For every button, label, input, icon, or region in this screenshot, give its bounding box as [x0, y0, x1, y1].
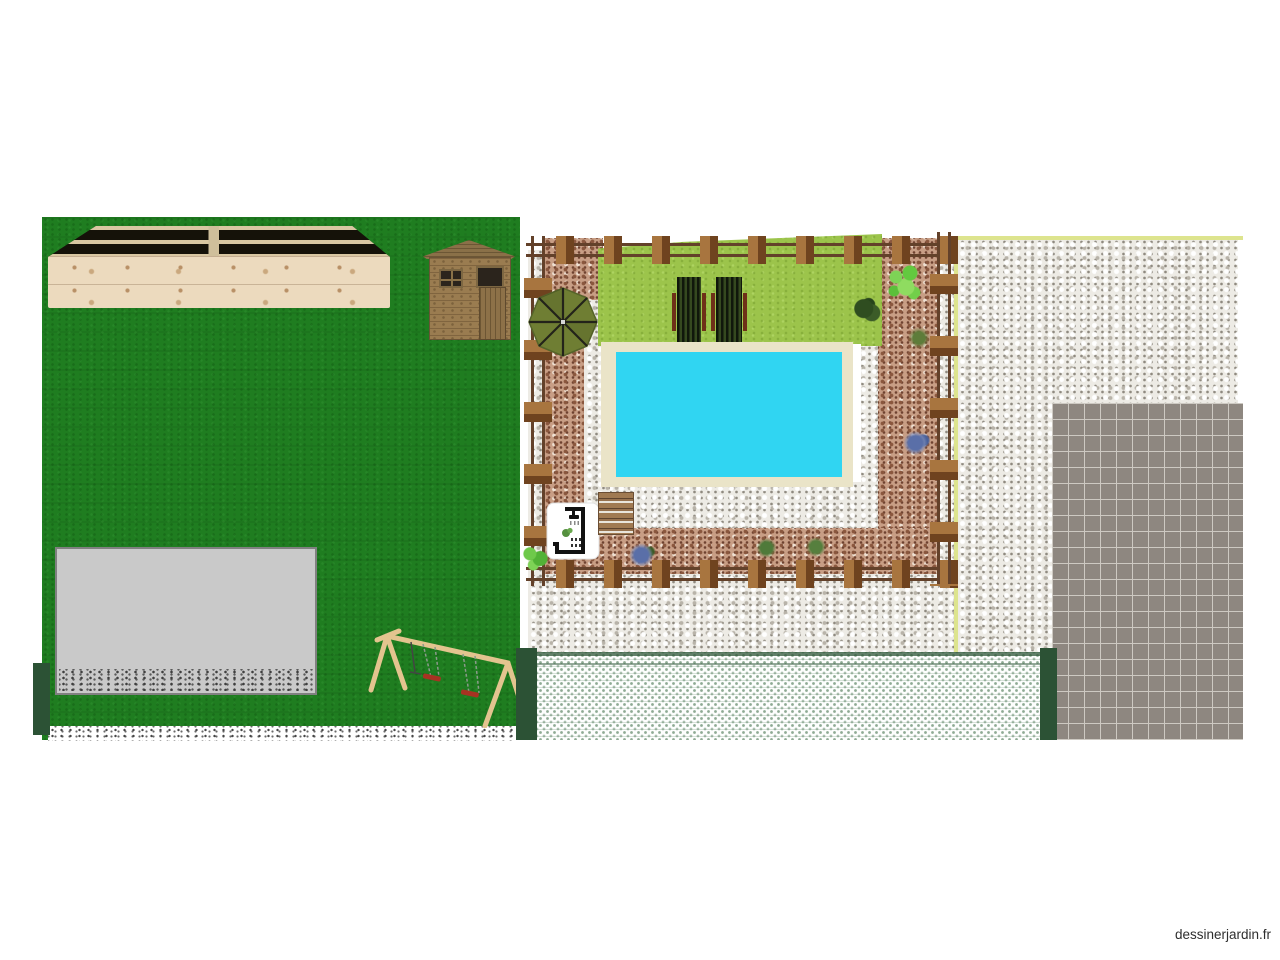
plant-green-bush[interactable] — [518, 541, 552, 573]
pool-surround — [601, 342, 853, 487]
plant-grass-tuft-3[interactable] — [804, 536, 828, 558]
plant-grass-tuft-2[interactable] — [753, 538, 783, 558]
pergola-beam-south[interactable] — [526, 560, 958, 588]
fence-post-left — [33, 663, 50, 735]
swing-frame — [371, 631, 525, 726]
swing-seats — [423, 673, 480, 698]
paved-terrace[interactable] — [55, 547, 317, 695]
plant-dark-bush[interactable] — [851, 296, 883, 324]
plant-grass-tuft-1[interactable] — [906, 326, 932, 350]
shed-door — [479, 287, 506, 340]
raised-deck-front[interactable] — [48, 256, 390, 308]
shed-window-left — [439, 269, 463, 288]
swing-set-icon — [365, 616, 533, 728]
shed-window-right — [476, 266, 504, 288]
pergola-beam-north[interactable] — [526, 236, 958, 264]
watermark-text: dessinerjardin.fr — [1175, 927, 1271, 942]
tiled-driveway — [1052, 403, 1243, 740]
fence-post-middle — [516, 648, 537, 740]
boundary-line-north — [954, 236, 1243, 240]
garden-shed[interactable] — [423, 240, 515, 340]
plant-blue-flower-2[interactable] — [626, 542, 660, 566]
garden-plan-canvas: dessinerjardin.fr — [0, 0, 1280, 960]
plant-bright-shrub[interactable] — [884, 263, 924, 303]
raised-deck-top-slats[interactable] — [48, 226, 390, 257]
lawn-edge-strip — [48, 726, 516, 741]
parasol-icon — [527, 286, 599, 358]
pergola-beam-east[interactable] — [930, 232, 958, 586]
hedge-strip — [537, 652, 1040, 740]
swing-set[interactable] — [365, 616, 533, 728]
sun-lounger-2[interactable] — [716, 277, 742, 343]
parasol[interactable] — [527, 286, 599, 358]
shed-body — [429, 257, 511, 340]
plant-blue-flower-1[interactable] — [901, 430, 933, 456]
shower-plan-card[interactable] — [546, 502, 600, 560]
swimming-pool[interactable] — [616, 352, 842, 477]
sun-lounger-1[interactable] — [677, 277, 701, 343]
wood-pallet[interactable] — [598, 492, 634, 535]
swing-trapeze — [410, 642, 421, 674]
shower-spray — [570, 521, 579, 525]
fence-post-right — [1040, 648, 1057, 740]
shower-plan-icon — [546, 502, 600, 560]
